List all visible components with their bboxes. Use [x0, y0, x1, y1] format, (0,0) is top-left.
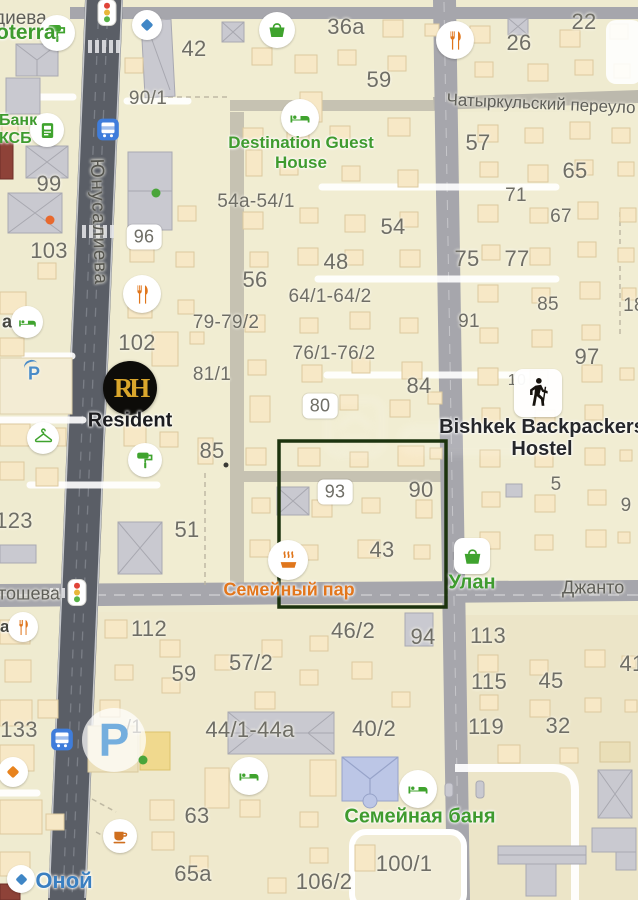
- house-number: 112: [131, 616, 167, 642]
- house-number: 75: [454, 246, 479, 272]
- traffic-light-icon[interactable]: [67, 579, 87, 612]
- tree-dot: [152, 189, 161, 198]
- house-number: 9: [621, 495, 632, 517]
- house-number: 80: [303, 394, 338, 419]
- paint-roller-icon[interactable]: [128, 443, 162, 477]
- clothes-hanger-icon[interactable]: [27, 422, 59, 454]
- poi-label-destination-guest-house[interactable]: Destination Guest House: [228, 133, 373, 173]
- house-number: 94: [410, 624, 435, 650]
- tree-dot: [139, 756, 148, 765]
- house-number: 59: [171, 661, 196, 687]
- bus-stop-icon[interactable]: [95, 117, 121, 148]
- house-number: 67: [550, 206, 572, 228]
- house-number: 76/1-76/2: [293, 343, 376, 365]
- hotel-bed-icon[interactable]: [230, 757, 268, 795]
- street-label-yunusalieva: Юнусалиева: [85, 158, 111, 285]
- bus-stop-icon[interactable]: [49, 727, 75, 758]
- house-number: 93: [318, 480, 353, 505]
- house-number: 65: [562, 158, 587, 184]
- house-number: 51: [174, 517, 199, 543]
- poi-label-semeyny-par[interactable]: Семейный пар: [223, 580, 354, 601]
- hiker-icon[interactable]: [514, 369, 562, 417]
- house-number: 42: [181, 36, 206, 62]
- house-number: 81/1: [193, 364, 231, 386]
- house-number: 133: [0, 717, 38, 743]
- house-number: 123: [0, 508, 33, 534]
- poi-label-bishkek-backpackers-hostel[interactable]: Bishkek Backpackers Hostel: [439, 416, 638, 460]
- partial-poi-badge: [606, 20, 638, 84]
- restaurant-icon[interactable]: [8, 612, 38, 642]
- house-number: 64/1-64/2: [289, 286, 372, 308]
- house-number: 32: [545, 713, 570, 739]
- poi-label-resident[interactable]: Resident: [88, 410, 172, 433]
- shopping-basket-icon[interactable]: [454, 538, 490, 574]
- map-canvas[interactable]: диева Юнусалиева Чатыркульский переуло т…: [0, 0, 638, 900]
- house-number: 41: [619, 651, 638, 677]
- shopping-basket-icon[interactable]: [259, 12, 295, 48]
- house-number: 56: [242, 267, 267, 293]
- house-number: 63: [184, 803, 209, 829]
- house-number: 115: [471, 669, 507, 695]
- house-number: 48: [323, 249, 348, 275]
- house-number: 54: [380, 214, 405, 240]
- black-dot: [224, 463, 229, 468]
- destination-bed-icon[interactable]: [281, 99, 319, 137]
- house-number: 57: [465, 130, 490, 156]
- parking-icon[interactable]: P: [28, 364, 40, 385]
- house-number: 26: [506, 30, 531, 56]
- house-number: 46/2: [331, 618, 375, 644]
- house-number: 40/2: [352, 716, 396, 742]
- poi-label-oterra[interactable]: oterra: [0, 21, 56, 45]
- house-number: 85: [199, 438, 224, 464]
- house-number: 71: [505, 185, 527, 207]
- resident-logo-icon[interactable]: RH: [103, 361, 157, 415]
- house-number: 5: [551, 474, 562, 496]
- poi-label-bank-ksb[interactable]: Банк КСБ: [0, 112, 37, 148]
- house-number: 106/2: [296, 869, 353, 895]
- hotel-bed-icon[interactable]: [399, 770, 437, 808]
- hotel-bed-icon[interactable]: [11, 306, 43, 338]
- poi-label-onoy[interactable]: Оной: [35, 868, 92, 894]
- house-number: 91: [458, 311, 480, 333]
- house-number: 85: [537, 294, 559, 316]
- street-label-dzhantoshev: Джанто: [562, 578, 624, 599]
- house-number: 102: [118, 330, 156, 356]
- restaurant-icon[interactable]: [436, 21, 474, 59]
- house-number: 77: [504, 246, 529, 272]
- blue-diamond-icon[interactable]: [7, 865, 35, 893]
- house-number: 36a: [327, 14, 365, 40]
- street-label-tosheva: тошева: [0, 584, 60, 605]
- parking-icon-large[interactable]: P: [82, 708, 146, 772]
- orange-dot: [46, 216, 55, 225]
- poi-label-ulan[interactable]: Улан: [448, 572, 495, 595]
- restaurant-icon[interactable]: [123, 275, 161, 313]
- house-number: 59: [366, 67, 391, 93]
- house-number: 84: [406, 373, 431, 399]
- house-number: 113: [470, 623, 506, 649]
- house-number: 18: [623, 295, 638, 317]
- house-number: 54a-54/1: [217, 191, 294, 213]
- house-number: 103: [30, 238, 68, 264]
- house-number: 99: [36, 171, 61, 197]
- blue-diamond-icon[interactable]: [132, 10, 162, 40]
- house-number: 45: [538, 668, 563, 694]
- house-number: 97: [574, 344, 599, 370]
- house-number: 44/1-44a: [205, 717, 294, 743]
- sauna-icon[interactable]: [268, 540, 308, 580]
- coffee-cup-icon[interactable]: [103, 819, 137, 853]
- house-number: 79-79/2: [193, 312, 260, 334]
- traffic-light-icon[interactable]: [97, 0, 117, 32]
- house-number: 90/1: [129, 88, 167, 110]
- house-number: 90: [408, 477, 433, 503]
- house-number: 57/2: [229, 650, 273, 676]
- house-number: 43: [369, 537, 394, 563]
- poi-label-semeynaya-banya[interactable]: Семейная баня: [344, 806, 495, 829]
- house-number: 65a: [174, 861, 212, 887]
- house-number: 96: [127, 225, 162, 250]
- house-number: 119: [468, 714, 504, 740]
- house-number: 22: [571, 9, 596, 35]
- house-number: 100/1: [376, 851, 433, 877]
